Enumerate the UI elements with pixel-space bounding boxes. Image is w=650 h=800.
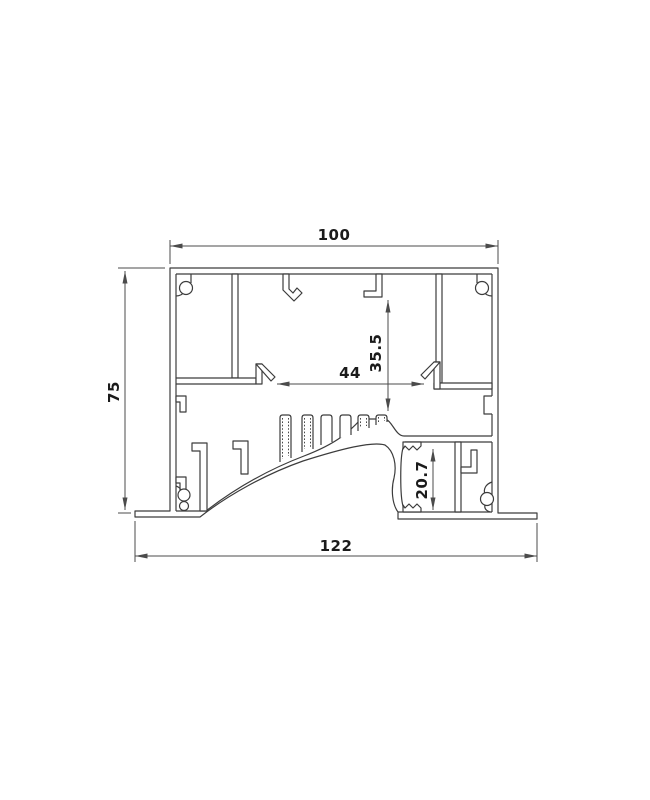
dim-label-slot-width: 44 xyxy=(339,364,361,382)
left-shelf xyxy=(176,378,256,384)
outer-silhouette xyxy=(135,268,537,519)
profile-drawing: 100 75 122 44 35.5 20.7 xyxy=(0,0,650,800)
dim-label-inner-depth: 35.5 xyxy=(367,333,385,372)
dim-label-pocket-height: 20.7 xyxy=(413,460,431,499)
drawing-page: 100 75 122 44 35.5 20.7 xyxy=(0,0,650,800)
right-shelf xyxy=(434,383,492,389)
dim-label-bottom-width: 122 xyxy=(320,537,353,555)
divider-left xyxy=(232,274,238,378)
profile-body xyxy=(135,268,537,519)
dim-label-left-height: 75 xyxy=(105,381,123,403)
pocket-right-wall xyxy=(455,442,461,512)
dim-label-top-width: 100 xyxy=(318,226,351,244)
